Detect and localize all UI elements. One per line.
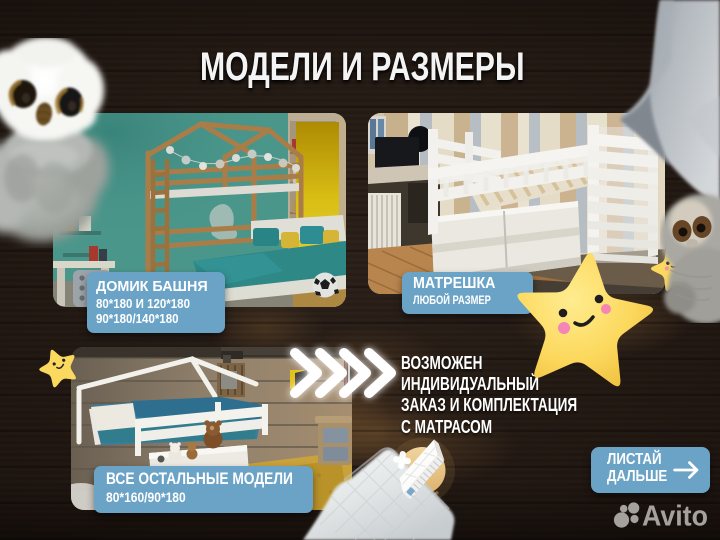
svg-text:Avito: Avito: [642, 500, 708, 532]
